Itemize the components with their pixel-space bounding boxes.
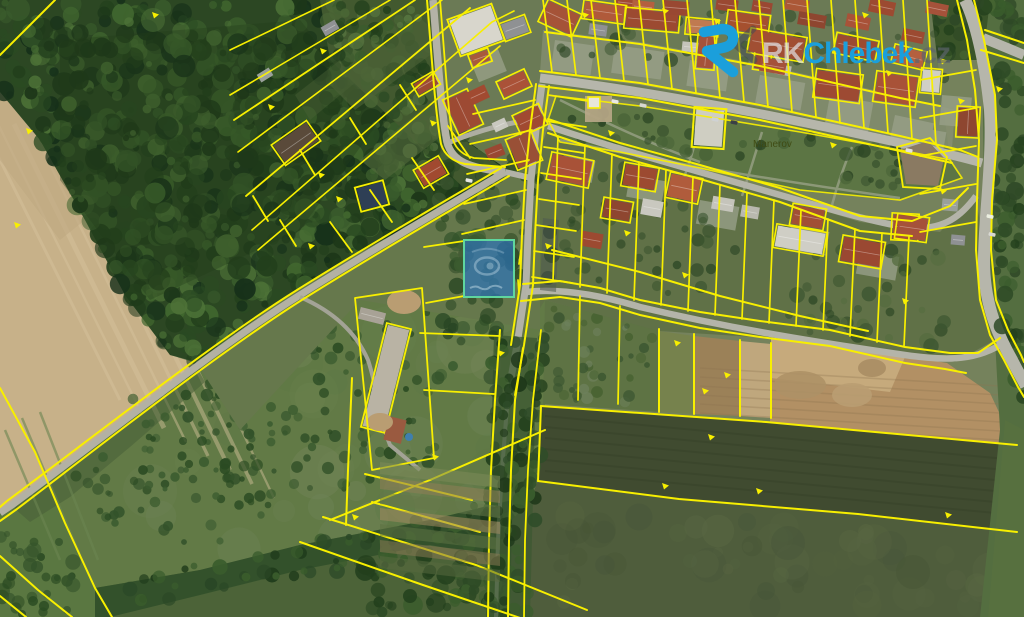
svg-text:Manerov: Manerov [753, 139, 792, 150]
svg-text:RKChlebek.cz: RKChlebek.cz [762, 37, 950, 70]
